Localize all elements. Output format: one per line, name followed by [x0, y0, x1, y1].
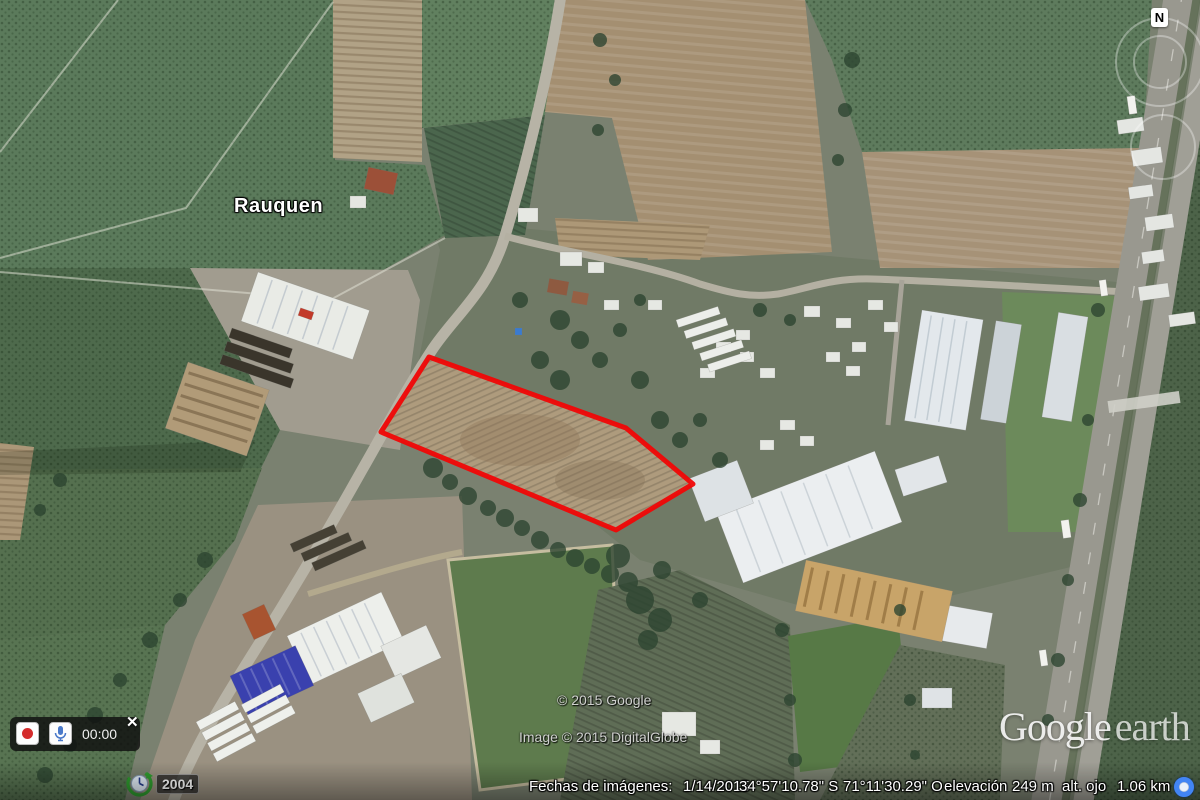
record-button[interactable]: [16, 722, 39, 745]
latitude-readout: 34°57'10.78" S: [739, 778, 838, 795]
tour-recorder-panel: 00:00 ✕: [10, 717, 140, 751]
elevation-label: elevación: [944, 778, 1007, 795]
recorder-time: 00:00: [82, 726, 117, 742]
satellite-imagery[interactable]: [0, 0, 1200, 800]
eye-altitude-label: alt. ojo: [1062, 778, 1106, 795]
longitude-readout: 71°11'30.29" O: [843, 778, 943, 795]
streaming-indicator-icon: [1174, 777, 1194, 797]
timeline-year: 2004: [156, 774, 199, 794]
recorder-close-icon[interactable]: ✕: [126, 713, 139, 731]
record-dot-icon: [22, 728, 33, 739]
microphone-icon: [53, 725, 68, 742]
copyright-digitalglobe: Image © 2015 DigitalGlobe: [519, 729, 687, 745]
historical-imagery-control[interactable]: 2004: [126, 770, 199, 797]
watermark-google: Google: [999, 704, 1111, 749]
compass-north-badge[interactable]: N: [1151, 8, 1168, 27]
google-earth-watermark: Googleearth: [999, 703, 1190, 750]
google-earth-viewport: Rauquen N 00:00 ✕ 2004 © 2015 Google Ima…: [0, 0, 1200, 800]
imagery-date-label: Fechas de imágenes:: [529, 778, 672, 795]
clock-icon: [126, 770, 153, 797]
place-label: Rauquen: [234, 195, 323, 218]
copyright-google: © 2015 Google: [557, 692, 651, 708]
elevation-value: 249 m: [1012, 778, 1054, 795]
mic-button[interactable]: [49, 722, 72, 745]
watermark-earth: earth: [1115, 704, 1190, 749]
eye-altitude-value: 1.06 km: [1117, 778, 1170, 795]
